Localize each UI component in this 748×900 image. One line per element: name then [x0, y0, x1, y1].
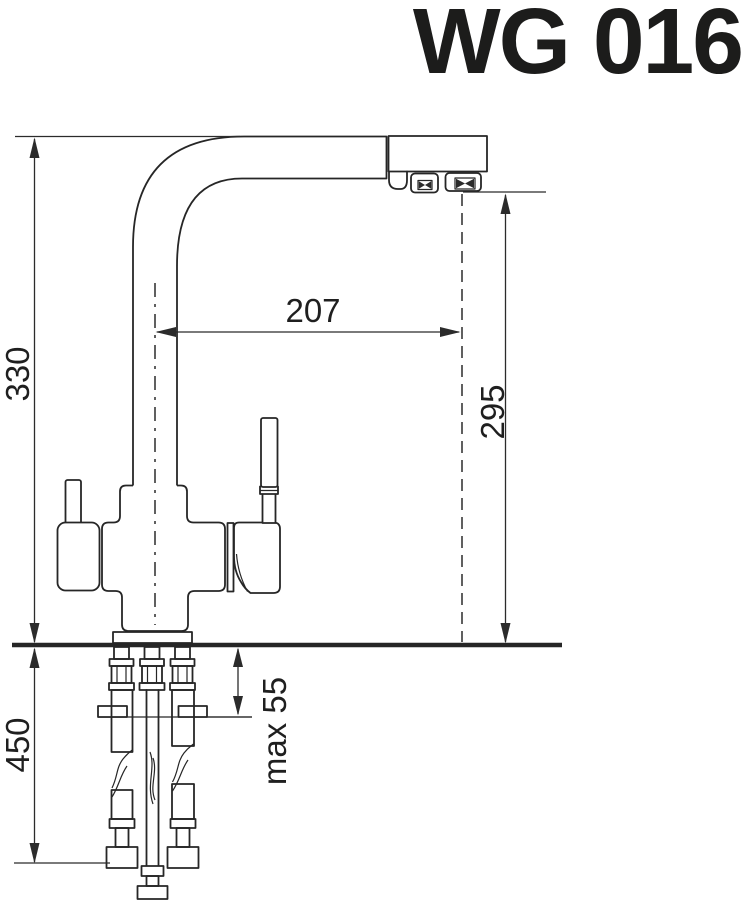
mixer-body [102, 486, 225, 632]
left-handle-lever [66, 480, 82, 524]
arrow-down [233, 696, 243, 716]
dimension-max55: max 55 [207, 648, 293, 786]
aerator-right [446, 173, 482, 191]
mounting-plate-right [179, 706, 208, 717]
mounting-stud-center [140, 647, 165, 690]
arrow-up [233, 648, 243, 668]
dim-label-330: 330 [0, 346, 36, 401]
dim-label-max55: max 55 [256, 677, 293, 785]
product-title: WG 016 [413, 0, 742, 93]
right-handle-lever [261, 418, 278, 487]
base-plate [113, 632, 192, 643]
arrow-down [501, 623, 511, 644]
mounting-stud-left [109, 647, 134, 690]
dimension-450: 450 [0, 648, 110, 864]
arrow-up [501, 194, 511, 215]
faucet-spout [133, 137, 387, 487]
arrow-up [30, 648, 40, 669]
faucet-diagram: WG 016 [0, 0, 748, 900]
dim-label-450: 450 [0, 717, 36, 772]
right-handle-stem [263, 494, 276, 524]
left-handle-knob [58, 523, 100, 591]
technical-drawing-page: WG 016 [0, 0, 748, 900]
right-handle-body [234, 523, 280, 594]
filter-tube-center [138, 690, 168, 899]
dimension-207: 207 [156, 292, 461, 337]
spout-head-lip [389, 172, 407, 190]
dimension-295: 295 [463, 192, 546, 644]
dim-label-295: 295 [474, 384, 511, 439]
arrow-right [440, 327, 461, 337]
arrow-down [30, 843, 40, 864]
faucet-body-drawing [58, 136, 488, 643]
under-counter-parts [98, 647, 252, 899]
right-handle-joint [228, 523, 234, 592]
mounting-stud-right [170, 647, 195, 690]
mounting-plate-left [98, 706, 127, 717]
dim-label-207: 207 [285, 292, 340, 329]
aerator-left [411, 174, 438, 193]
arrow-down [30, 623, 40, 644]
arrow-up [30, 138, 40, 159]
spout-head [389, 136, 488, 172]
